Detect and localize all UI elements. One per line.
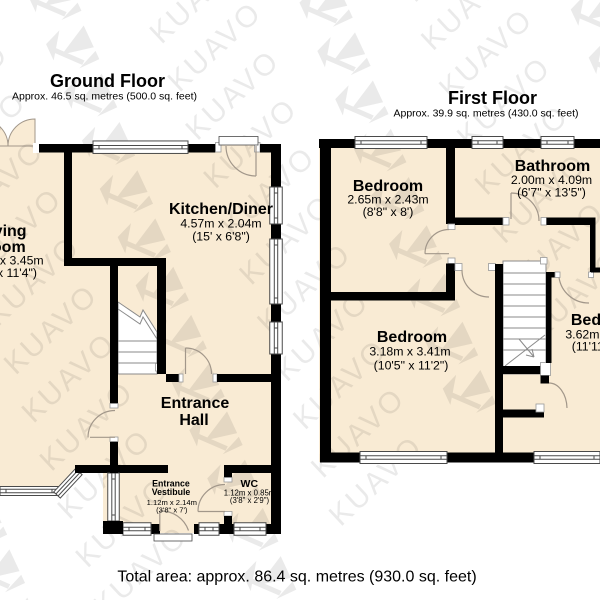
svg-text:Bedroom: Bedroom bbox=[377, 329, 447, 346]
svg-text:(15' x 6'8"): (15' x 6'8") bbox=[192, 230, 250, 244]
svg-text:(3'8" x 7'): (3'8" x 7') bbox=[156, 505, 188, 514]
svg-text:Entrance: Entrance bbox=[161, 395, 230, 412]
svg-text:First Floor: First Floor bbox=[448, 88, 537, 108]
svg-text:Vestibule: Vestibule bbox=[152, 487, 191, 497]
svg-text:Hall: Hall bbox=[179, 412, 208, 429]
svg-text:4.57m x 2.04m: 4.57m x 2.04m bbox=[180, 217, 261, 231]
svg-text:Bedroom: Bedroom bbox=[571, 312, 600, 329]
svg-text:(3'8" x 2'9"): (3'8" x 2'9") bbox=[230, 496, 270, 505]
svg-text:Living: Living bbox=[0, 223, 27, 240]
svg-text:Total area: approx. 86.4 sq. m: Total area: approx. 86.4 sq. metres (930… bbox=[117, 569, 476, 586]
svg-text:(6'7" x 13'5"): (6'7" x 13'5") bbox=[517, 186, 586, 200]
svg-text:Ground Floor: Ground Floor bbox=[50, 71, 165, 91]
svg-text:(8'8" x 8'): (8'8" x 8') bbox=[363, 205, 414, 219]
svg-text:Approx. 39.9 sq. metres (430.0: Approx. 39.9 sq. metres (430.0 sq. feet) bbox=[393, 108, 578, 120]
svg-text:(10'5" x 11'2"): (10'5" x 11'2") bbox=[374, 359, 449, 373]
svg-text:Approx. 46.5 sq. metres (500.0: Approx. 46.5 sq. metres (500.0 sq. feet) bbox=[12, 91, 197, 103]
svg-text:(11'11" x 11'): (11'11" x 11') bbox=[572, 340, 600, 354]
svg-text:3.18m x 3.41m: 3.18m x 3.41m bbox=[369, 345, 450, 359]
svg-text:Kitchen/Diner: Kitchen/Diner bbox=[169, 201, 273, 218]
svg-text:(9'7" x 11'4"): (9'7" x 11'4") bbox=[0, 266, 37, 280]
